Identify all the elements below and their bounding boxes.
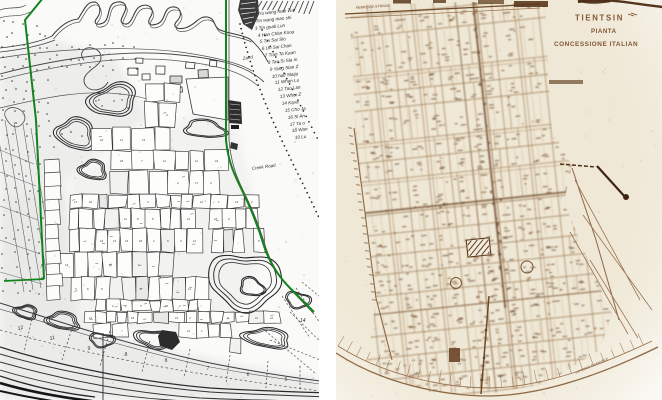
svg-text:TIENTSIN: TIENTSIN <box>575 14 624 23</box>
svg-text:2: 2 <box>124 304 127 308</box>
svg-text:10: 10 <box>109 263 113 267</box>
svg-text:13: 13 <box>100 239 104 243</box>
svg-text:14: 14 <box>142 138 146 142</box>
svg-text:13: 13 <box>125 239 129 243</box>
svg-text:13: 13 <box>235 200 239 204</box>
svg-text:11: 11 <box>188 287 191 291</box>
svg-text:12: 12 <box>200 200 204 204</box>
svg-text:11: 11 <box>195 159 198 163</box>
svg-text:CONCESSIONE ITALIAN: CONCESSIONE ITALIAN <box>554 41 638 48</box>
svg-text:17: 17 <box>74 200 78 204</box>
svg-text:11: 11 <box>163 159 166 163</box>
svg-text:12: 12 <box>270 316 274 320</box>
svg-text:17: 17 <box>195 181 199 185</box>
svg-text:2: 2 <box>250 200 253 204</box>
svg-text:2: 2 <box>152 239 155 243</box>
svg-text:12: 12 <box>187 217 191 221</box>
svg-text:18: 18 <box>120 159 124 163</box>
svg-text:18: 18 <box>214 217 218 221</box>
svg-text:12: 12 <box>187 329 191 333</box>
svg-text:14: 14 <box>300 318 306 324</box>
svg-text:16: 16 <box>89 200 93 204</box>
svg-text:16: 16 <box>100 138 104 142</box>
svg-text:10: 10 <box>165 304 169 308</box>
svg-text:11: 11 <box>120 138 123 142</box>
svg-text:12: 12 <box>89 316 93 320</box>
svg-text:11: 11 <box>124 217 127 221</box>
svg-text:13: 13 <box>65 263 69 267</box>
svg-text:13: 13 <box>113 239 117 243</box>
svg-text:14: 14 <box>175 316 179 320</box>
svg-text:18: 18 <box>131 316 135 320</box>
svg-text:19: 19 <box>215 159 219 163</box>
svg-text:12: 12 <box>255 316 259 320</box>
svg-text:18: 18 <box>139 239 143 243</box>
svg-text:PIANTA: PIANTA <box>591 28 617 35</box>
